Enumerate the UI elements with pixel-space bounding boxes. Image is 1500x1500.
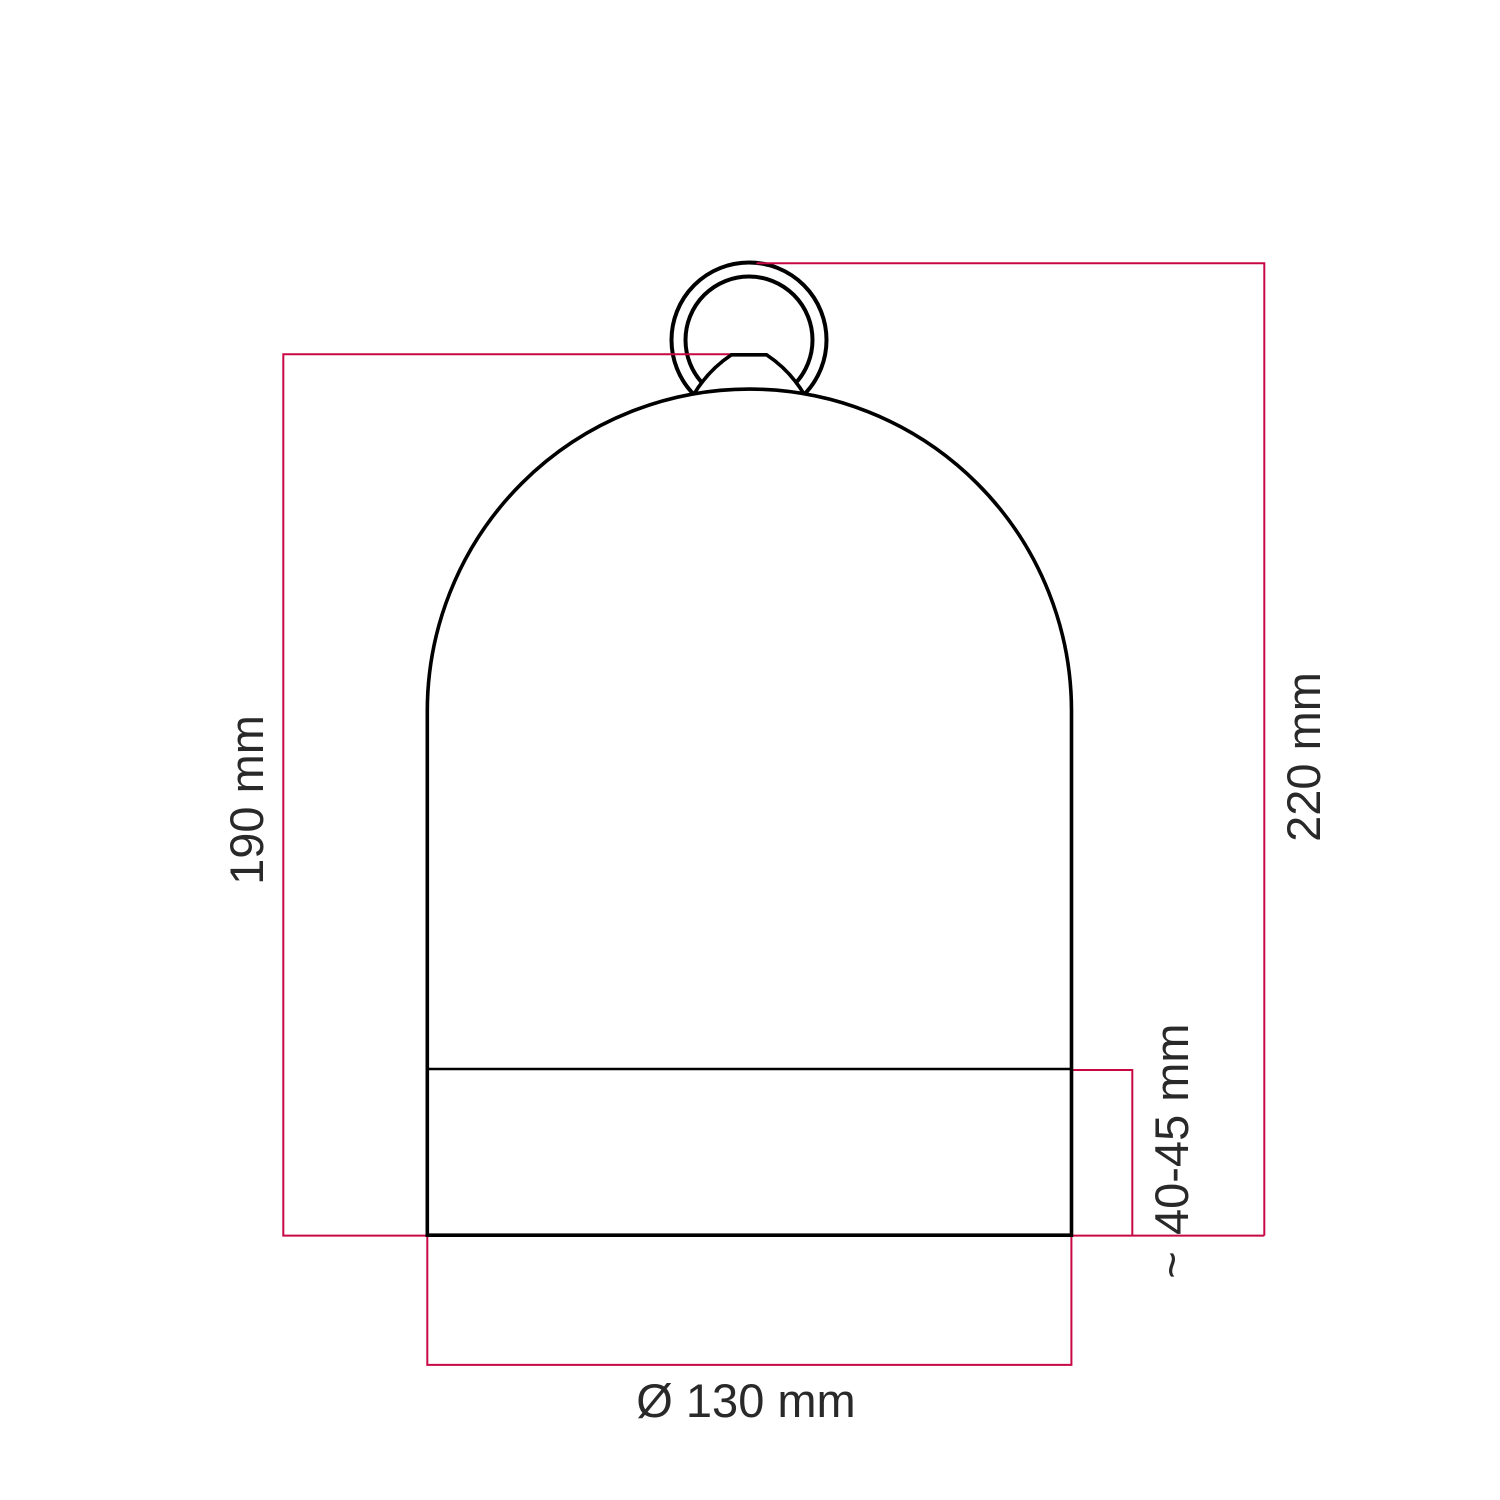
svg-text:220 mm: 220 mm (1277, 672, 1330, 842)
svg-text:190 mm: 190 mm (220, 715, 273, 885)
svg-text:Ø 130 mm: Ø 130 mm (636, 1374, 855, 1427)
svg-text:~: ~ (1145, 1251, 1198, 1278)
svg-text:40-45 mm: 40-45 mm (1145, 1023, 1198, 1235)
